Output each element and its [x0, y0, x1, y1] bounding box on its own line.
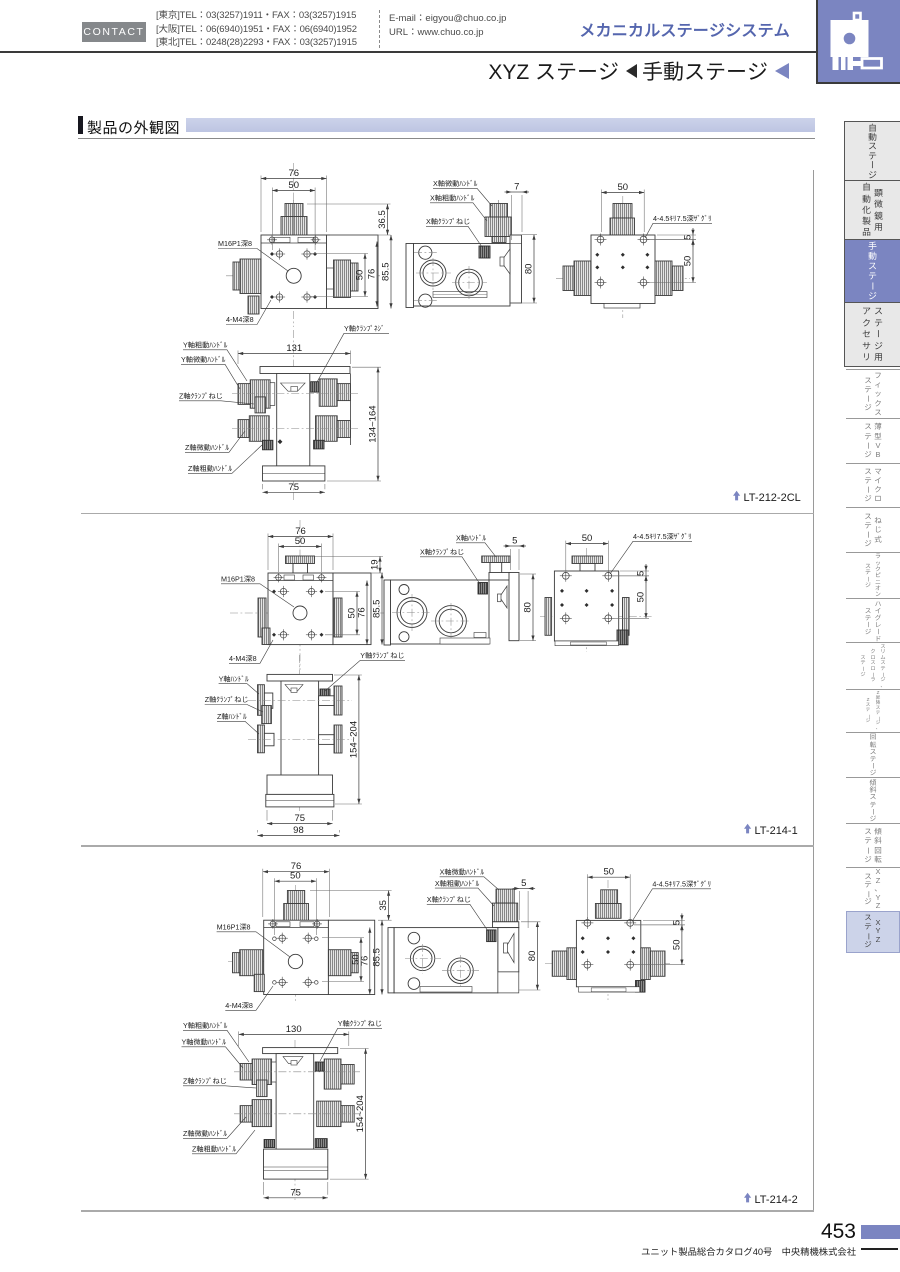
svg-text:X軸粗動ﾊﾝﾄﾞﾙ: X軸粗動ﾊﾝﾄﾞﾙ	[435, 879, 480, 889]
svg-text:50: 50	[680, 256, 694, 267]
svg-text:4-M4深8: 4-M4深8	[225, 1001, 253, 1011]
svg-text:50: 50	[295, 533, 306, 547]
svg-text:130: 130	[286, 1021, 302, 1035]
svg-text:75: 75	[290, 1184, 301, 1198]
svg-text:50: 50	[582, 530, 593, 544]
svg-text:80: 80	[521, 264, 535, 275]
svg-text:19: 19	[367, 559, 381, 570]
svg-text:80: 80	[520, 602, 534, 613]
svg-text:Y軸ｸﾗﾝﾌﾟねじ: Y軸ｸﾗﾝﾌﾟねじ	[338, 1019, 382, 1029]
svg-text:85.5: 85.5	[369, 600, 383, 619]
svg-text:LT-214-2: LT-214-2	[755, 1191, 798, 1207]
svg-text:7: 7	[514, 179, 519, 193]
svg-text:134~164: 134~164	[365, 405, 379, 442]
svg-text:5: 5	[680, 235, 694, 240]
svg-text:80: 80	[524, 951, 538, 962]
svg-text:50: 50	[288, 177, 299, 191]
svg-text:154~204: 154~204	[352, 1095, 366, 1132]
svg-text:X軸ﾊﾝﾄﾞﾙ: X軸ﾊﾝﾄﾞﾙ	[456, 534, 486, 544]
svg-text:X軸ｸﾗﾝﾌﾟねじ: X軸ｸﾗﾝﾌﾟねじ	[427, 895, 471, 905]
svg-text:4-4.5ｷﾘ7.5深ｻﾞｸﾞﾘ: 4-4.5ｷﾘ7.5深ｻﾞｸﾞﾘ	[633, 532, 692, 542]
svg-text:50: 50	[618, 179, 629, 193]
svg-text:50: 50	[668, 940, 682, 951]
svg-text:75: 75	[288, 479, 299, 493]
svg-text:50: 50	[344, 608, 358, 619]
svg-text:Y軸ｸﾗﾝﾌﾟﾈｼﾞ: Y軸ｸﾗﾝﾌﾟﾈｼﾞ	[344, 324, 385, 334]
svg-text:X軸微動ﾊﾝﾄﾞﾙ: X軸微動ﾊﾝﾄﾞﾙ	[433, 179, 478, 189]
svg-text:M16P1深8: M16P1深8	[218, 239, 252, 249]
svg-text:Z軸ｸﾗﾝﾌﾟねじ: Z軸ｸﾗﾝﾌﾟねじ	[183, 1077, 227, 1087]
svg-text:35: 35	[375, 900, 389, 911]
svg-text:Z軸微動ﾊﾝﾄﾞﾙ: Z軸微動ﾊﾝﾄﾞﾙ	[183, 1129, 227, 1139]
svg-text:LT-214-1: LT-214-1	[755, 822, 798, 838]
svg-text:Z軸粗動ﾊﾝﾄﾞﾙ: Z軸粗動ﾊﾝﾄﾞﾙ	[188, 464, 232, 474]
svg-text:X軸ｸﾗﾝﾌﾟねじ: X軸ｸﾗﾝﾌﾟねじ	[426, 217, 470, 227]
svg-text:76: 76	[364, 269, 378, 280]
svg-text:X軸ｸﾗﾝﾌﾟねじ: X軸ｸﾗﾝﾌﾟねじ	[420, 548, 464, 558]
svg-text:Y軸微動ﾊﾝﾄﾞﾙ: Y軸微動ﾊﾝﾄﾞﾙ	[181, 355, 226, 365]
svg-text:Y軸ﾊﾝﾄﾞﾙ: Y軸ﾊﾝﾄﾞﾙ	[219, 674, 249, 684]
svg-text:50: 50	[352, 270, 366, 281]
svg-text:85.5: 85.5	[378, 263, 392, 282]
svg-text:M16P1深8: M16P1深8	[217, 923, 251, 933]
svg-text:50: 50	[604, 864, 615, 878]
svg-text:4-4.5ｷﾘ7.5深ｻﾞｸﾞﾘ: 4-4.5ｷﾘ7.5深ｻﾞｸﾞﾘ	[653, 214, 712, 224]
svg-text:Y軸粗動ﾊﾝﾄﾞﾙ: Y軸粗動ﾊﾝﾄﾞﾙ	[183, 341, 228, 351]
svg-text:5: 5	[521, 875, 526, 889]
svg-text:4-M4深8: 4-M4深8	[226, 315, 254, 325]
svg-text:154~204: 154~204	[345, 721, 359, 758]
svg-text:4-M4深8: 4-M4深8	[229, 654, 257, 664]
svg-text:Z軸粗動ﾊﾝﾄﾞﾙ: Z軸粗動ﾊﾝﾄﾞﾙ	[192, 1145, 236, 1155]
svg-text:36.5: 36.5	[374, 210, 388, 229]
svg-text:5: 5	[633, 571, 647, 576]
svg-text:Z軸ｸﾗﾝﾌﾟねじ: Z軸ｸﾗﾝﾌﾟねじ	[179, 392, 223, 402]
svg-text:98: 98	[293, 822, 304, 836]
svg-text:85.5: 85.5	[369, 948, 383, 967]
svg-text:M16P1深8: M16P1深8	[221, 575, 255, 585]
svg-text:50: 50	[348, 954, 362, 965]
svg-text:131: 131	[286, 340, 302, 354]
svg-text:50: 50	[290, 868, 301, 882]
svg-text:Y軸微動ﾊﾝﾄﾞﾙ: Y軸微動ﾊﾝﾄﾞﾙ	[182, 1038, 227, 1048]
svg-text:Z軸ｸﾗﾝﾌﾟねじ: Z軸ｸﾗﾝﾌﾟねじ	[205, 695, 249, 705]
svg-text:50: 50	[633, 592, 647, 603]
svg-text:5: 5	[668, 920, 682, 925]
svg-text:5: 5	[512, 533, 517, 547]
svg-text:Z軸微動ﾊﾝﾄﾞﾙ: Z軸微動ﾊﾝﾄﾞﾙ	[185, 443, 229, 453]
svg-text:Z軸ﾊﾝﾄﾞﾙ: Z軸ﾊﾝﾄﾞﾙ	[217, 712, 247, 722]
svg-text:X軸粗動ﾊﾝﾄﾞﾙ: X軸粗動ﾊﾝﾄﾞﾙ	[430, 194, 475, 204]
svg-text:4-4.5ｷﾘ7.5深ｻﾞｸﾞﾘ: 4-4.5ｷﾘ7.5深ｻﾞｸﾞﾘ	[652, 880, 711, 890]
svg-text:Y軸粗動ﾊﾝﾄﾞﾙ: Y軸粗動ﾊﾝﾄﾞﾙ	[183, 1021, 228, 1031]
svg-text:Y軸ｸﾗﾝﾌﾟねじ: Y軸ｸﾗﾝﾌﾟねじ	[360, 651, 404, 661]
svg-text:LT-212-2CL: LT-212-2CL	[744, 489, 801, 505]
svg-text:X軸微動ﾊﾝﾄﾞﾙ: X軸微動ﾊﾝﾄﾞﾙ	[440, 868, 485, 878]
